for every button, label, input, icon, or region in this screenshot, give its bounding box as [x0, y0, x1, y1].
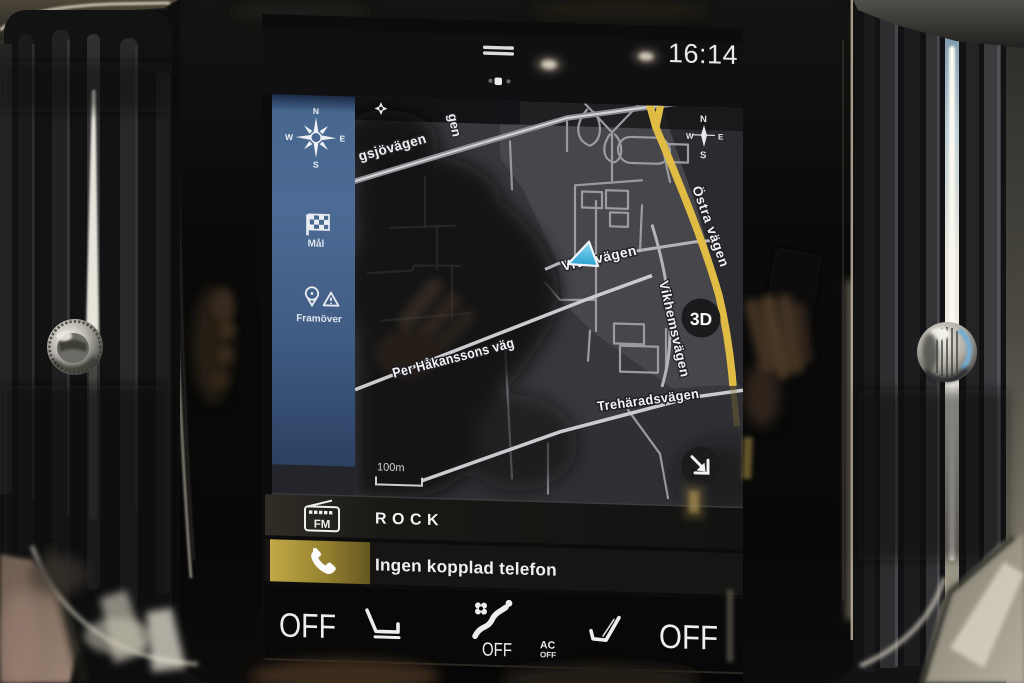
svg-text:N: N: [313, 106, 319, 116]
svg-text:Framöver: Framöver: [296, 313, 342, 325]
svg-text:Mål: Mål: [308, 237, 325, 250]
svg-text:OFF: OFF: [659, 618, 718, 658]
svg-text:W: W: [686, 132, 694, 141]
svg-text:3D: 3D: [690, 309, 712, 330]
svg-text:OFF: OFF: [540, 650, 556, 659]
svg-text:E: E: [340, 134, 346, 144]
svg-text:16:14: 16:14: [668, 38, 738, 70]
svg-text:N: N: [700, 114, 707, 125]
svg-text:OFF: OFF: [279, 607, 336, 647]
svg-text:OFF: OFF: [482, 640, 512, 662]
svg-text:S: S: [700, 150, 706, 161]
svg-text:W: W: [285, 132, 294, 142]
svg-text:ROCK: ROCK: [375, 510, 444, 529]
svg-text:100m: 100m: [377, 461, 405, 474]
svg-text:S: S: [313, 160, 319, 170]
svg-text:FM: FM: [314, 519, 331, 531]
svg-text:E: E: [718, 133, 724, 142]
